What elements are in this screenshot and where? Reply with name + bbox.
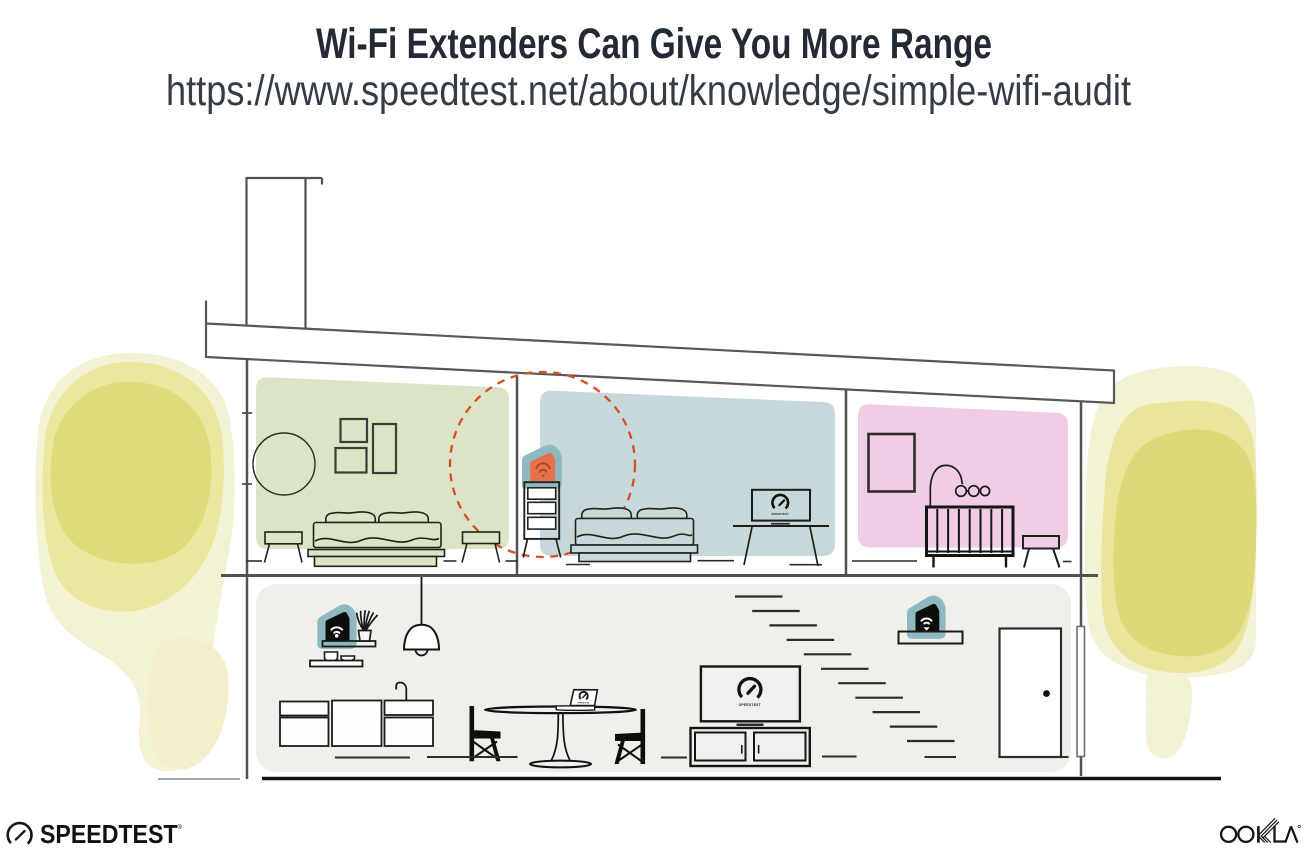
svg-text:SPEEDTEST: SPEEDTEST bbox=[578, 703, 591, 705]
svg-text:https://www.speedtest.net/abou: https://www.speedtest.net/about/knowledg… bbox=[166, 68, 1131, 115]
svg-text:SPEEDTEST: SPEEDTEST bbox=[739, 703, 761, 707]
svg-text:®: ® bbox=[178, 824, 183, 831]
svg-text:SPEEDTEST: SPEEDTEST bbox=[772, 513, 790, 516]
svg-text:SPEEDTEST: SPEEDTEST bbox=[40, 821, 178, 849]
svg-text:Wi-Fi Extenders Can Give You M: Wi-Fi Extenders Can Give You More Range bbox=[316, 20, 992, 68]
